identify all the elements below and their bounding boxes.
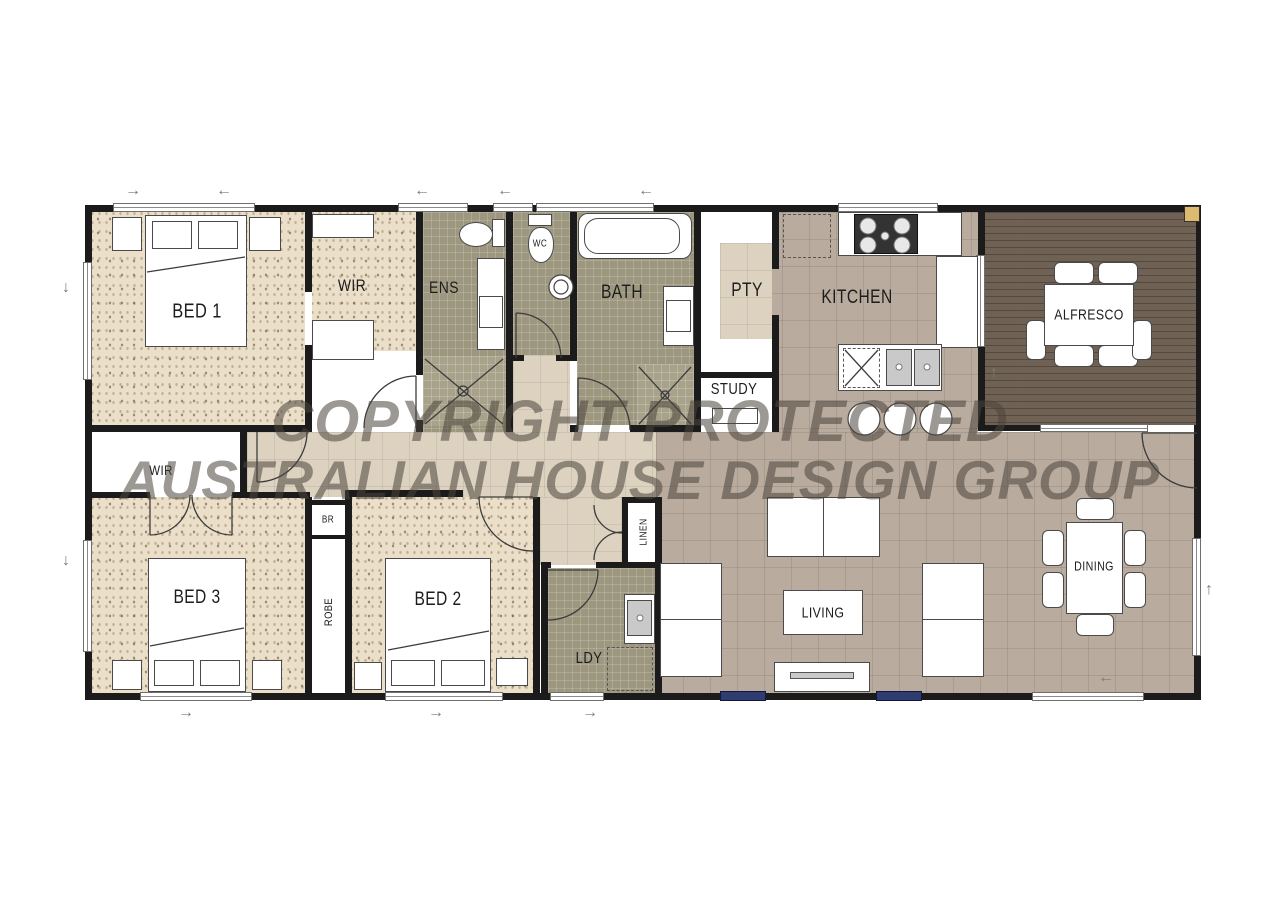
- wall-linen-left: [622, 497, 628, 568]
- sofa-divider: [923, 619, 983, 620]
- door-ldy-bottom: [550, 692, 604, 701]
- room-label-robe: ROBE: [323, 598, 335, 626]
- toilet-cistern: [528, 214, 552, 226]
- wall-br-top: [310, 500, 345, 505]
- window-arrow-left-icon: ←: [638, 183, 654, 199]
- toilet-bowl: [459, 222, 493, 247]
- dining-chair: [1076, 614, 1114, 636]
- dining-chair: [1124, 530, 1146, 566]
- wall-pty-inner: [772, 212, 779, 269]
- door-alfresco-sliding: [1040, 424, 1148, 432]
- outdoor-chair: [1054, 345, 1094, 367]
- floor-hall-main: [247, 432, 656, 497]
- room-label-wir3: WIR: [149, 462, 173, 478]
- wall-bath-pty: [694, 212, 701, 432]
- bedside-table: [249, 217, 281, 251]
- tv: [790, 672, 854, 679]
- room-label-bed1: BED 1: [172, 301, 221, 324]
- outdoor-chair: [1132, 320, 1152, 360]
- kitchen-bench-right: [936, 256, 978, 348]
- wall-bed3-right: [305, 497, 312, 693]
- wall-br-robe-divider: [310, 535, 345, 539]
- wall-ldy-left: [541, 565, 548, 693]
- kitchen-sink: [914, 349, 940, 386]
- wall-wir3-bottom-left: [85, 492, 150, 498]
- wall-linen-bottom: [596, 562, 660, 568]
- room-label-pty: PTY: [731, 280, 763, 302]
- window-bath-top: [536, 203, 654, 212]
- pillow: [391, 660, 435, 686]
- window-dining-bottom: [1032, 692, 1144, 701]
- window-arrow-left-icon: ←: [414, 183, 430, 199]
- pillow: [200, 660, 240, 686]
- floor-plan: BED 1 WIR ENS WC BATH PTY KITCHEN ALFRES…: [0, 0, 1280, 904]
- window-bed3-left: [83, 540, 92, 652]
- outdoor-chair: [1054, 262, 1094, 284]
- study-desk: [712, 408, 758, 424]
- window-arrow-right-icon: →: [428, 705, 444, 721]
- outdoor-chair: [1026, 320, 1046, 360]
- window-bed2-bottom: [385, 692, 503, 701]
- bedside-table: [496, 658, 528, 686]
- room-label-living: LIVING: [802, 605, 845, 622]
- window-living-bottom-2: [876, 691, 922, 701]
- window-kitchen-top: [838, 203, 938, 212]
- pillow: [198, 221, 238, 249]
- room-label-wc: WC: [533, 239, 547, 250]
- cooktop: [854, 214, 918, 254]
- window-arrow-left-icon: ←: [497, 183, 513, 199]
- window-living-bottom-1: [720, 691, 766, 701]
- window-arrow-down-icon: ↓: [62, 553, 70, 569]
- window-arrow-up-icon: ↑: [990, 365, 998, 381]
- wall-bath-bottom-left: [570, 425, 578, 432]
- post: [1184, 206, 1200, 222]
- room-label-bath: BATH: [601, 282, 643, 304]
- sofa-divider: [823, 498, 824, 556]
- sofa: [660, 563, 722, 677]
- bedside-table: [354, 662, 382, 690]
- room-label-ens: ENS: [429, 278, 459, 298]
- room-label-ldy: LDY: [576, 650, 603, 668]
- dining-chair: [1124, 572, 1146, 608]
- wall-wir-ens: [416, 212, 423, 375]
- fridge-space: [783, 214, 831, 258]
- wall-wir3-right: [240, 432, 247, 497]
- sofa: [922, 563, 984, 677]
- wall-wir3-bottom-right: [232, 492, 310, 498]
- room-label-dining: DINING: [1074, 559, 1114, 574]
- wall-ldy-top-stub: [541, 562, 551, 568]
- room-label-linen: LINEN: [639, 518, 650, 545]
- bathtub-inner: [584, 218, 680, 254]
- window-ens-top: [398, 203, 468, 212]
- wall-bed1-bottom: [85, 425, 310, 432]
- wall-robe-bed2: [345, 497, 352, 693]
- sofa-divider: [661, 619, 721, 620]
- window-dining-right: [1192, 538, 1201, 656]
- wall-wc-bath: [570, 212, 577, 360]
- wardrobe-shelf: [312, 214, 374, 238]
- wall-bed1-wir-lower: [305, 345, 312, 432]
- washer-space: [607, 647, 653, 691]
- room-label-kitchen: KITCHEN: [821, 287, 892, 309]
- wardrobe-shelf: [312, 320, 374, 360]
- wall-bed1-wir-upper: [305, 212, 312, 292]
- window-arrow-left-icon: ←: [216, 183, 232, 199]
- window-bed1-top: [113, 203, 255, 212]
- wall-bath-bottom-right: [630, 425, 701, 432]
- door-arrow-right-icon: →: [582, 705, 598, 721]
- dishwasher-space: [843, 348, 880, 388]
- floor-wir1-lobby: [312, 351, 416, 425]
- wall-bed2-right: [533, 497, 540, 693]
- window-arrow-right-icon: →: [178, 705, 194, 721]
- window-arrow-left-icon: ←: [1098, 670, 1114, 686]
- window-bed3-bottom: [140, 692, 252, 701]
- floor-hall-linen: [540, 497, 622, 565]
- vanity-sink: [479, 296, 503, 328]
- room-label-alfresco: ALFRESCO: [1054, 307, 1124, 324]
- dining-chair: [1042, 572, 1064, 608]
- kitchen-sink: [886, 349, 912, 386]
- room-label-bed3: BED 3: [173, 587, 220, 609]
- toilet-cistern: [492, 219, 505, 247]
- shower-ens: [423, 356, 506, 426]
- wall-ens-wc: [506, 212, 513, 432]
- window-bed1-left: [83, 262, 92, 380]
- wall-wc-bottom-left: [506, 355, 524, 361]
- room-label-br: BR: [322, 515, 334, 526]
- vanity-sink: [666, 300, 691, 332]
- dining-chair: [1042, 530, 1064, 566]
- wall-study-top: [694, 372, 774, 378]
- wall-wc-bottom-right: [556, 355, 577, 361]
- pillow: [154, 660, 194, 686]
- window-arrow-right-icon: →: [125, 183, 141, 199]
- shower-bath: [637, 364, 694, 426]
- pillow: [441, 660, 485, 686]
- room-label-study: STUDY: [711, 381, 758, 399]
- room-label-wir1: WIR: [338, 276, 366, 296]
- outdoor-chair: [1098, 262, 1138, 284]
- bedside-table: [112, 660, 142, 690]
- laundry-sink: [627, 600, 652, 636]
- floor-hall-wc: [513, 355, 570, 432]
- pillow: [152, 221, 192, 249]
- bedside-table: [252, 660, 282, 690]
- wall-bed2-top: [345, 490, 463, 497]
- dining-chair: [1076, 498, 1114, 520]
- wall-wir-ens-stub: [416, 420, 423, 432]
- room-label-bed2: BED 2: [414, 589, 461, 611]
- bedside-table: [112, 217, 142, 251]
- window-wc-top: [493, 203, 533, 212]
- window-arrow-up-icon: ↑: [1205, 582, 1213, 598]
- window-arrow-down-icon: ↓: [62, 280, 70, 296]
- wall-alfresco-right: [1196, 212, 1201, 430]
